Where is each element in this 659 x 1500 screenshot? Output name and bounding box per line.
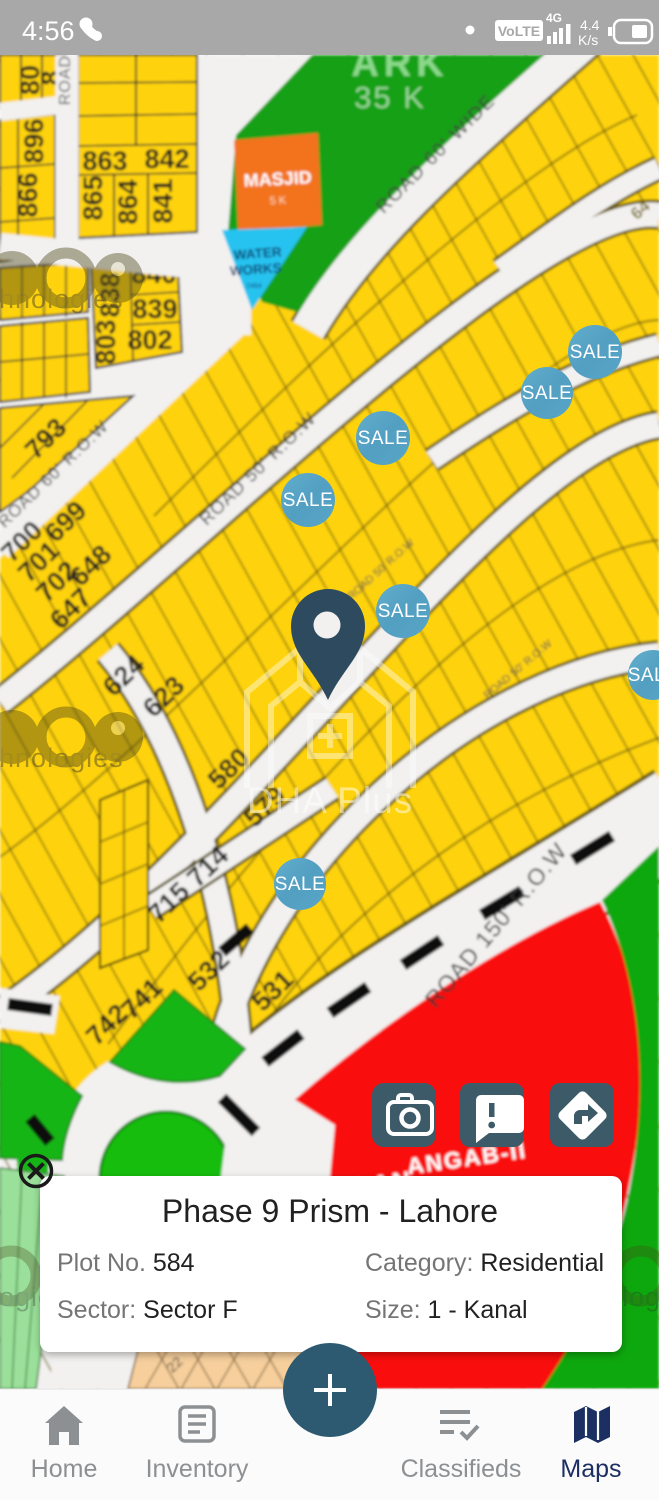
svg-text:Category: Residential: Category: Residential (365, 1249, 604, 1277)
svg-text:839: 839 (132, 294, 177, 324)
svg-text:Size: 1 - Kanal: Size: 1 - Kanal (365, 1296, 528, 1324)
svg-text:Phase 9 Prism - Lahore: Phase 9 Prism - Lahore (162, 1193, 498, 1229)
svg-text:803: 803 (91, 319, 121, 364)
svg-text:802: 802 (127, 325, 172, 355)
svg-text:842: 842 (144, 144, 189, 174)
svg-text:MASJID: MASJID (243, 167, 312, 191)
svg-text:5 K: 5 K (269, 195, 287, 208)
svg-text:896: 896 (19, 118, 49, 163)
svg-text:SALE: SALE (628, 665, 659, 686)
svg-text:Home: Home (31, 1455, 98, 1483)
svg-text:865: 865 (78, 175, 108, 220)
svg-text:SALE: SALE (378, 601, 429, 622)
svg-text:841: 841 (148, 178, 178, 223)
svg-text:SALE: SALE (283, 490, 334, 511)
svg-text:4.4: 4.4 (580, 17, 600, 33)
svg-text:4G: 4G (546, 11, 562, 25)
svg-text:SALE: SALE (358, 428, 409, 449)
svg-text:Plot No. 584: Plot No. 584 (57, 1249, 195, 1277)
svg-text:Sector: Sector F: Sector: Sector F (57, 1296, 238, 1324)
svg-text:VoLTE: VoLTE (498, 23, 540, 39)
svg-text:SALE: SALE (275, 874, 326, 895)
svg-text:2464: 2464 (246, 283, 262, 290)
svg-text:technologies: technologies (0, 284, 124, 314)
svg-text:864: 864 (113, 179, 143, 224)
svg-text:35 K: 35 K (354, 80, 426, 115)
svg-text:K/s: K/s (578, 32, 598, 48)
svg-text:Classifieds: Classifieds (401, 1455, 522, 1483)
svg-text:Inventory: Inventory (146, 1455, 249, 1483)
svg-text:SALE: SALE (570, 342, 621, 363)
svg-text:SALE: SALE (522, 383, 573, 404)
svg-text:4:56: 4:56 (22, 16, 75, 46)
svg-text:technologies: technologies (0, 743, 124, 773)
svg-text:863: 863 (82, 146, 127, 176)
svg-text:866: 866 (13, 172, 43, 217)
svg-text:DHA Plus: DHA Plus (247, 780, 413, 821)
svg-text:ROAD: ROAD (57, 55, 74, 105)
svg-text:Maps: Maps (560, 1455, 621, 1483)
